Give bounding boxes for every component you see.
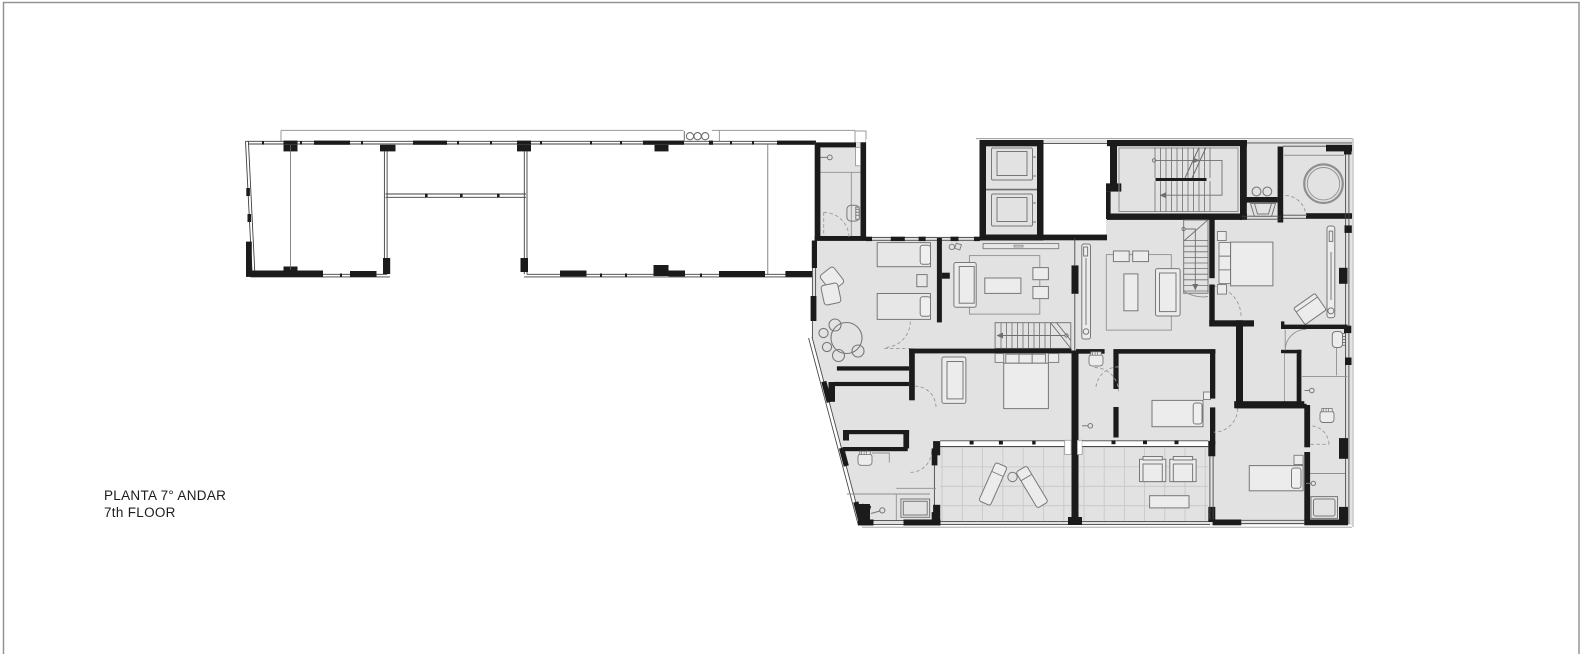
svg-text:7th FLOOR: 7th FLOOR: [104, 505, 176, 520]
svg-text:PLANTA 7° ANDAR: PLANTA 7° ANDAR: [104, 488, 226, 503]
